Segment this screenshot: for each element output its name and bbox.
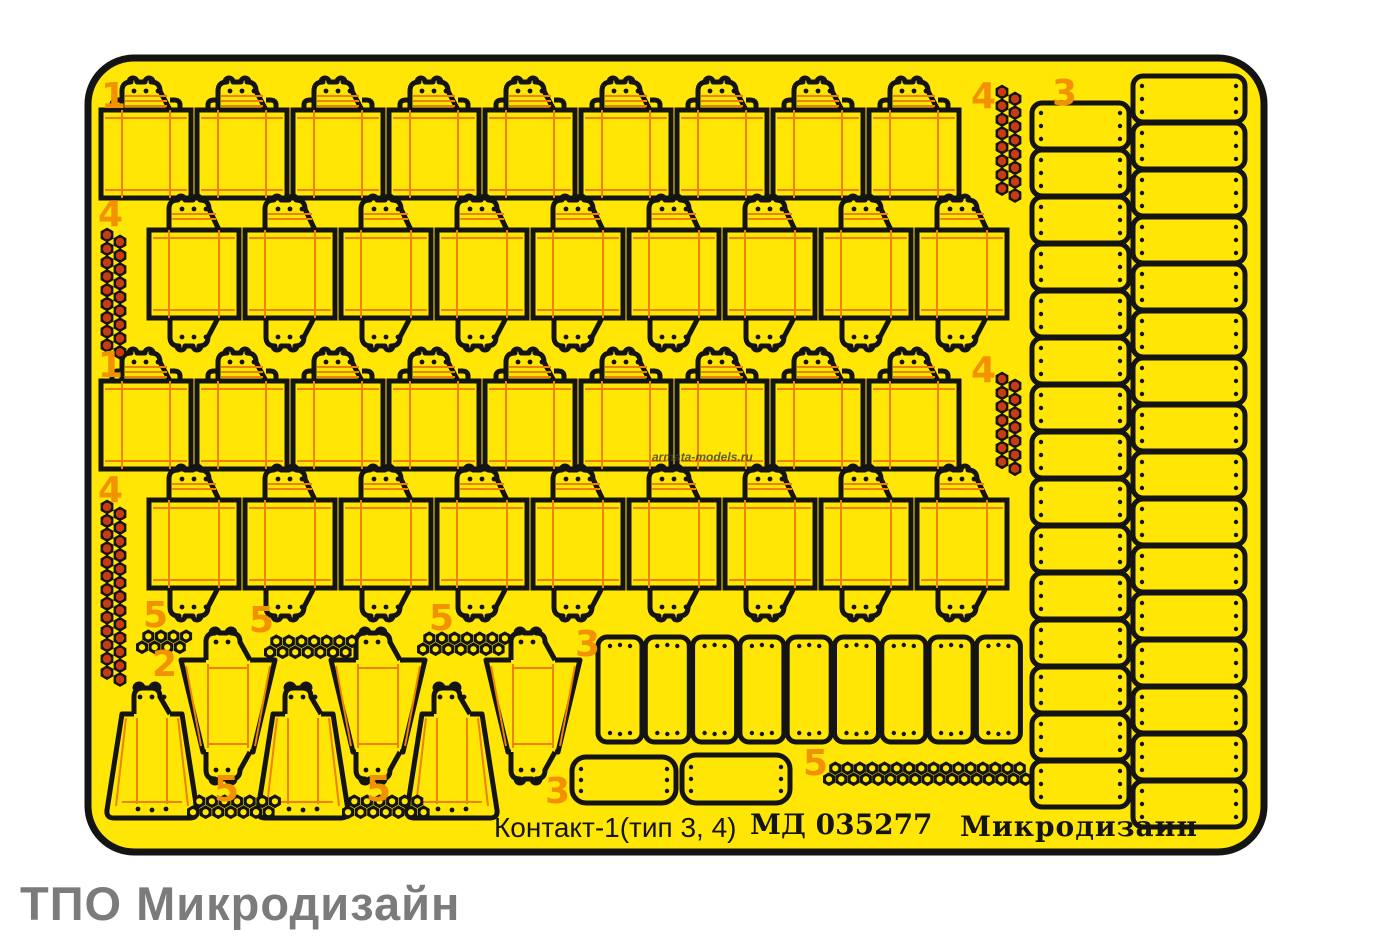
part-number-label: 3 — [545, 771, 570, 812]
part-number-label: 5 — [249, 600, 274, 641]
part-number-label: 3 — [1052, 73, 1077, 114]
part-number-label: 4 — [971, 350, 996, 391]
part-number-label: 2 — [152, 644, 177, 685]
part-number-label: 5 — [366, 769, 391, 810]
photo-etch-sheet-image: 1434144555235355 Контакт-1(тип 3, 4) МД … — [0, 0, 1384, 942]
brand-logotype: Микродизаин — [960, 810, 1198, 843]
part-number-label: 4 — [98, 470, 123, 511]
fret-sheet: 1434144555235355 — [0, 0, 1384, 942]
part-number-label: 5 — [214, 769, 239, 810]
part-number-label: 3 — [575, 624, 600, 665]
part-number-label: 5 — [803, 743, 828, 784]
part-number-label: 5 — [143, 595, 168, 636]
part-number-label: 4 — [971, 76, 996, 117]
sheet-catalog-code: МД 035277 — [750, 808, 933, 841]
part-number-label: 5 — [429, 598, 454, 639]
producer-caption: ТПО Микродизайн — [20, 876, 460, 931]
part-number-label: 1 — [98, 345, 123, 386]
part-number-label: 1 — [101, 76, 126, 117]
part-number-label: 4 — [98, 194, 123, 235]
sheet-title: Контакт-1(тип 3, 4) — [494, 812, 736, 844]
watermark-text: armata-models.ru — [652, 450, 753, 464]
